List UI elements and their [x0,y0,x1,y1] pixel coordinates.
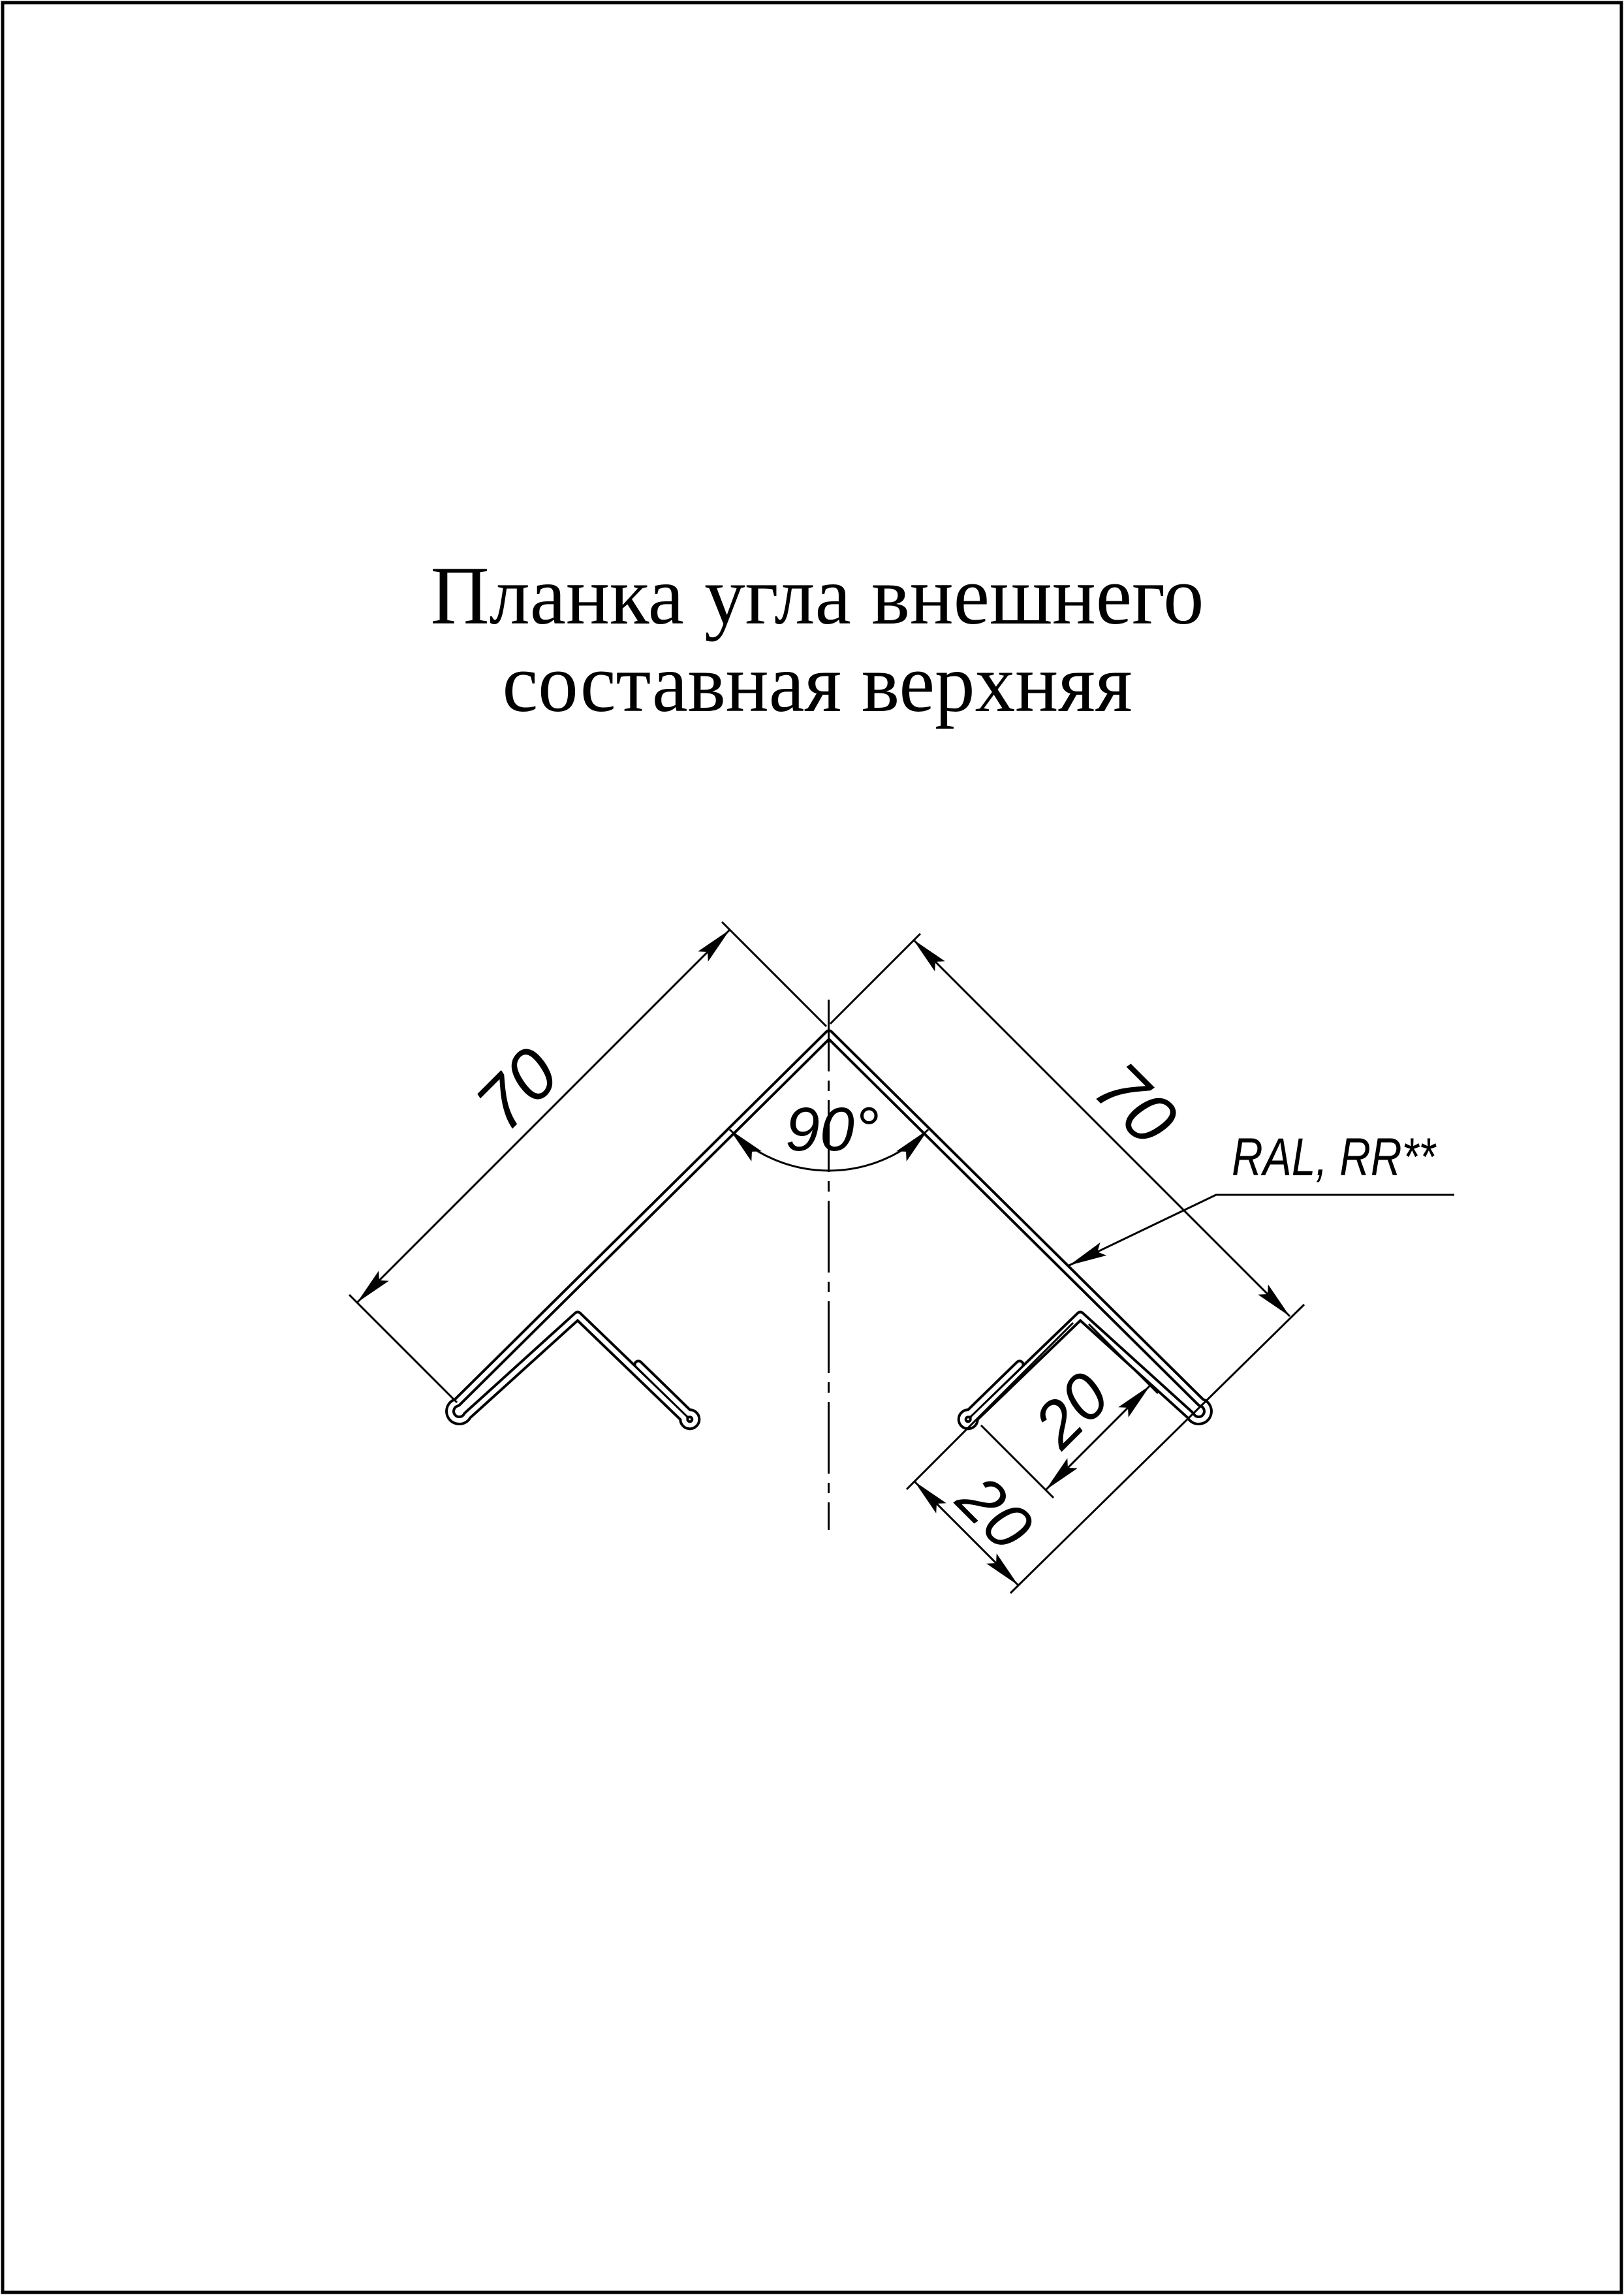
ext-line-peak-se [1089,1324,1158,1393]
dim-text-left-leg: 70 [461,1033,574,1146]
drawing-sheet: Планка угла внешнего составная верхняя 7… [0,0,1624,2295]
coating-label: RAL, RR** [1232,1128,1437,1187]
dim-text-left-leg-group: 70 [461,1033,574,1146]
drawing-title-line1: Планка угла внешнего [431,550,1204,642]
dim-text-right-leg-group: 70 [1079,1047,1192,1160]
drawing-title-line2: составная верхняя [503,638,1132,729]
ext-line-apex-right [830,934,920,1024]
technical-drawing-canvas: Планка угла внешнего составная верхняя 7… [0,0,1624,2295]
leader-line [1069,1195,1454,1265]
ext-line-apex-left [722,922,826,1026]
dim-text-flange-group: 20 [1020,1359,1123,1463]
ext-line-right-end [1010,1305,1304,1593]
ext-line-left-end [349,1295,457,1402]
dim-text-flange: 20 [1020,1359,1123,1463]
dim-text-angle: 90° [785,1095,879,1164]
dim-text-right-leg: 70 [1079,1047,1192,1160]
